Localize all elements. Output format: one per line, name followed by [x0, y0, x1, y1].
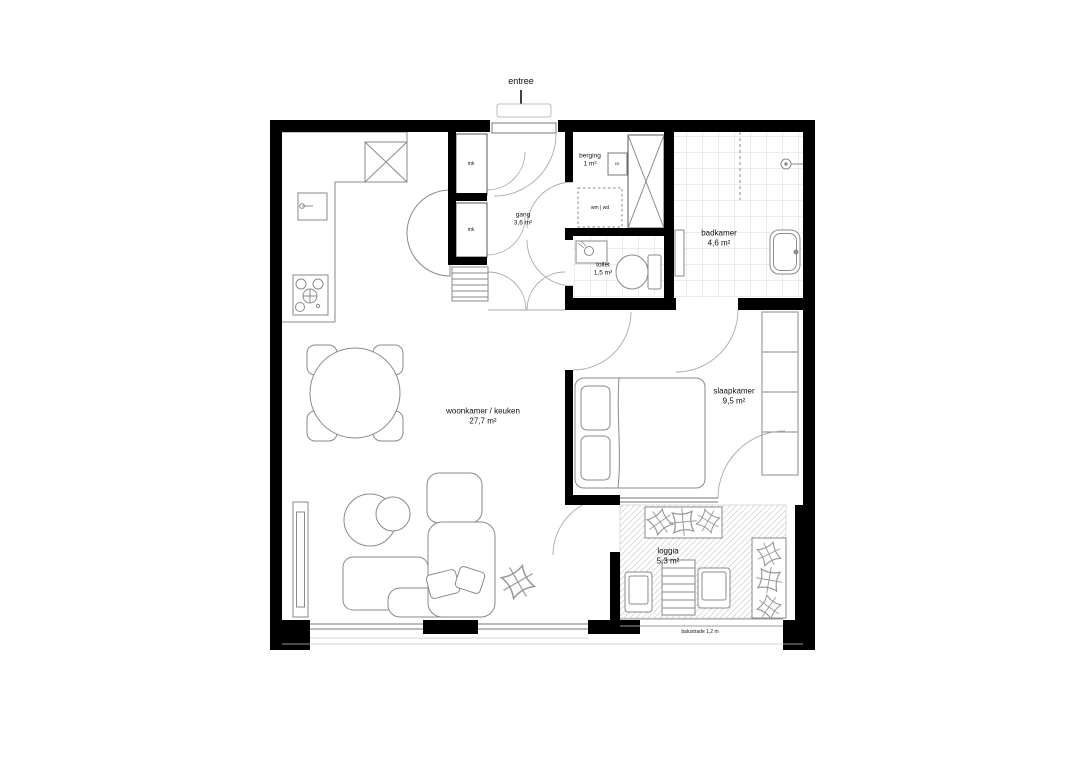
window-living-left — [310, 620, 423, 634]
table-top — [310, 348, 400, 438]
window-living-right — [478, 620, 588, 634]
wall — [783, 620, 815, 650]
hall-cabinet — [452, 267, 488, 301]
floorplan-page: entree — [0, 0, 1092, 772]
wall — [448, 257, 487, 265]
room-name: woonkamer / keuken — [446, 407, 520, 417]
annotation-meterkast-bottom: mk — [468, 227, 475, 234]
room-name: toilet — [594, 262, 612, 270]
room-area: 3,6 m² — [514, 220, 532, 228]
wardrobe — [762, 312, 798, 475]
berging-door-swing — [527, 182, 573, 228]
bedroom-furniture — [575, 312, 798, 488]
wall — [448, 193, 487, 201]
room-label-woonkamer: woonkamer / keuken 27,7 m² — [446, 407, 520, 428]
wall — [270, 120, 282, 650]
wall — [558, 120, 815, 132]
dining-table-round — [307, 345, 403, 441]
wall — [270, 620, 310, 650]
room-area: 1 m² — [579, 161, 601, 169]
bathroom-radiator — [675, 230, 684, 276]
entree-label: entree — [508, 76, 534, 88]
room-name: loggia — [657, 547, 680, 557]
pillow — [581, 436, 610, 480]
sofa-group — [293, 473, 539, 617]
wall — [423, 620, 478, 634]
loggia-living-door-swing — [553, 498, 610, 555]
room-label-loggia: loggia 5,3 m² — [657, 547, 680, 568]
wall — [270, 120, 490, 132]
balustrade — [620, 619, 783, 626]
room-label-gang: gang 3,6 m² — [514, 212, 532, 229]
room-name: gang — [514, 212, 532, 220]
room-area: 1,5 m² — [594, 270, 612, 278]
wall — [664, 132, 674, 310]
wall — [738, 298, 803, 310]
radiator-inner — [297, 512, 305, 607]
window-bedroom-loggia — [620, 498, 718, 502]
dining-table-nook — [407, 190, 450, 276]
wall — [565, 495, 620, 505]
room-area: 9,5 m² — [713, 397, 754, 407]
floorplan-canvas — [270, 100, 815, 650]
plant — [497, 561, 539, 603]
bathroom-door-swing — [676, 310, 738, 372]
room-label-toilet: toilet 1,5 m² — [594, 262, 612, 279]
wall — [565, 298, 676, 310]
room-area: 27,7 m² — [446, 417, 520, 427]
kitchen-counter — [282, 132, 407, 322]
entrance-door-leaf — [492, 123, 556, 133]
room-name: berging — [579, 153, 601, 161]
wall — [565, 132, 573, 182]
coffee-table-small — [376, 497, 410, 531]
room-area: 4,6 m² — [701, 239, 737, 249]
livingroom-door-swing — [488, 272, 526, 310]
annotation-unit: cv — [615, 161, 620, 167]
room-name: slaapkamer — [713, 387, 754, 397]
armchair-pouf — [427, 473, 482, 523]
toilet-door-swing — [527, 240, 573, 286]
room-label-badkamer: badkamer 4,6 m² — [701, 229, 737, 250]
room-area: 5,3 m² — [657, 557, 680, 567]
pillow — [581, 386, 610, 430]
toilet-bowl — [616, 255, 648, 289]
dining-table-half-round — [407, 190, 450, 276]
doormat — [497, 104, 551, 117]
annotation-balustrade: balustrade 1,2 m — [681, 629, 718, 636]
sill-lines — [282, 638, 803, 644]
wall — [565, 370, 573, 505]
room-name: badkamer — [701, 229, 737, 239]
room-label-berging: berging 1 m² — [579, 153, 601, 170]
loggia-chair-right — [698, 568, 730, 608]
closet-door-swing — [487, 152, 525, 190]
annotation-washer-dryer: wm | wd — [591, 205, 609, 212]
room-label-slaapkamer: slaapkamer 9,5 m² — [713, 387, 754, 408]
annotation-meterkast-top: mk — [468, 161, 475, 168]
bathroom-sink-basin — [774, 234, 797, 271]
toilet-tank — [648, 255, 661, 289]
bedroom-door-swing — [573, 312, 631, 370]
wall — [610, 552, 620, 625]
wall — [565, 228, 674, 236]
sink-tap — [794, 250, 798, 254]
floorplan: woonkamer / keuken 27,7 m² slaapkamer 9,… — [270, 100, 815, 650]
